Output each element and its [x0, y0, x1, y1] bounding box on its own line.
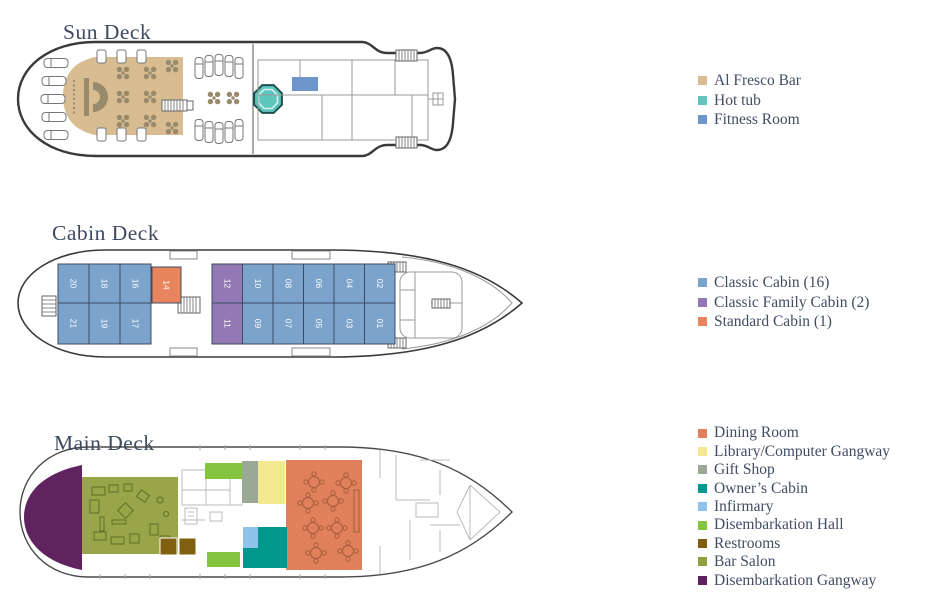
legend-swatch — [698, 278, 707, 287]
legend-item-classic-family-cabin-2: Classic Family Cabin (2) — [698, 293, 869, 313]
legend-swatch — [698, 539, 707, 548]
main-deck-legend: Dining RoomLibrary/Computer GangwayGift … — [698, 424, 890, 590]
cabin-07-label: 07 — [283, 319, 293, 329]
legend-swatch — [698, 502, 707, 511]
legend-label: Infirmary — [714, 499, 773, 515]
legend-swatch — [698, 429, 707, 438]
library-computer-gangway-area — [258, 461, 285, 504]
cabin-10-label: 10 — [253, 279, 263, 289]
cabin-11-label: 11 — [222, 319, 232, 328]
legend-label: Classic Family Cabin (2) — [714, 295, 869, 311]
legend-swatch — [698, 484, 707, 493]
legend-swatch — [698, 576, 707, 585]
cabin-05-label: 05 — [314, 319, 324, 329]
cabin-12-label: 12 — [222, 279, 232, 289]
cabin-deck-legend: Classic Cabin (16)Classic Family Cabin (… — [698, 273, 869, 332]
cabin-rooms: 20181621191714121008060402110907050301 — [58, 264, 395, 344]
legend-item-gift-shop: Gift Shop — [698, 461, 890, 479]
legend-item-disembarkation-gangway: Disembarkation Gangway — [698, 571, 890, 589]
main-deck-title: Main Deck — [54, 431, 155, 456]
legend-label: Library/Computer Gangway — [714, 444, 890, 460]
legend-swatch — [698, 557, 707, 566]
legend-swatch — [698, 465, 707, 474]
gift-shop-area — [242, 461, 258, 503]
cabin-03-label: 03 — [344, 319, 354, 329]
cabin-19-label: 19 — [100, 319, 110, 329]
cabin-deck-plan: 20181621191714121008060402110907050301 — [18, 250, 522, 357]
cabin-02-label: 02 — [375, 279, 385, 289]
infirmary-area — [243, 527, 258, 548]
ship-deck-plan: 20181621191714121008060402110907050301 — [0, 0, 948, 609]
sun-deck-legend: Al Fresco BarHot tubFitness Room — [698, 71, 801, 130]
legend-swatch — [698, 447, 707, 456]
legend-item-al-fresco-bar: Al Fresco Bar — [698, 71, 801, 91]
disembarkation-hall-top — [205, 463, 242, 479]
legend-item-hot-tub: Hot tub — [698, 91, 801, 111]
cabin-17-label: 17 — [131, 319, 141, 329]
cabin-06-label: 06 — [314, 279, 324, 289]
legend-label: Disembarkation Gangway — [714, 573, 876, 589]
legend-item-bar-salon: Bar Salon — [698, 553, 890, 571]
main-deck-plan — [20, 445, 512, 579]
disembarkation-hall-bottom — [207, 552, 240, 567]
legend-item-fitness-room: Fitness Room — [698, 110, 801, 130]
legend-label: Classic Cabin (16) — [714, 275, 829, 291]
legend-item-library-computer-gangway: Library/Computer Gangway — [698, 442, 890, 460]
dining-room-area — [286, 460, 362, 570]
legend-label: Disembarkation Hall — [714, 517, 844, 533]
legend-swatch — [698, 115, 707, 124]
cabin-18-label: 18 — [100, 279, 110, 289]
legend-item-infirmary: Infirmary — [698, 498, 890, 516]
legend-label: Dining Room — [714, 425, 799, 441]
legend-item-dining-room: Dining Room — [698, 424, 890, 442]
legend-item-restrooms: Restrooms — [698, 534, 890, 552]
cabin-deck-title: Cabin Deck — [52, 221, 159, 246]
legend-swatch — [698, 521, 707, 530]
legend-label: Fitness Room — [714, 112, 800, 128]
legend-label: Gift Shop — [714, 462, 775, 478]
legend-item-disembarkation-hall: Disembarkation Hall — [698, 516, 890, 534]
legend-label: Restrooms — [714, 536, 780, 552]
legend-label: Bar Salon — [714, 554, 776, 570]
cabin-09-label: 09 — [253, 319, 263, 329]
sun-deck-title: Sun Deck — [63, 20, 151, 45]
legend-swatch — [698, 96, 707, 105]
cabin-01-label: 01 — [375, 319, 385, 329]
cabin-20-label: 20 — [69, 279, 79, 289]
legend-item-classic-cabin-16: Classic Cabin (16) — [698, 273, 869, 293]
legend-swatch — [698, 317, 707, 326]
legend-swatch — [698, 298, 707, 307]
cabin-14-label: 14 — [162, 280, 172, 290]
legend-label: Standard Cabin (1) — [714, 314, 832, 330]
legend-item-owner-s-cabin: Owner’s Cabin — [698, 479, 890, 497]
legend-label: Owner’s Cabin — [714, 481, 808, 497]
cabin-08-label: 08 — [283, 279, 293, 289]
legend-item-standard-cabin-1: Standard Cabin (1) — [698, 312, 869, 332]
sun-deck-stairs-mid — [162, 100, 193, 111]
legend-swatch — [698, 76, 707, 85]
cabin-21-label: 21 — [69, 319, 79, 329]
legend-label: Hot tub — [714, 93, 761, 109]
legend-label: Al Fresco Bar — [714, 73, 801, 89]
cabin-16-label: 16 — [131, 279, 141, 289]
cabin-04-label: 04 — [344, 279, 354, 289]
sun-deck-plan — [18, 42, 455, 156]
fitness-room-area — [292, 77, 318, 91]
